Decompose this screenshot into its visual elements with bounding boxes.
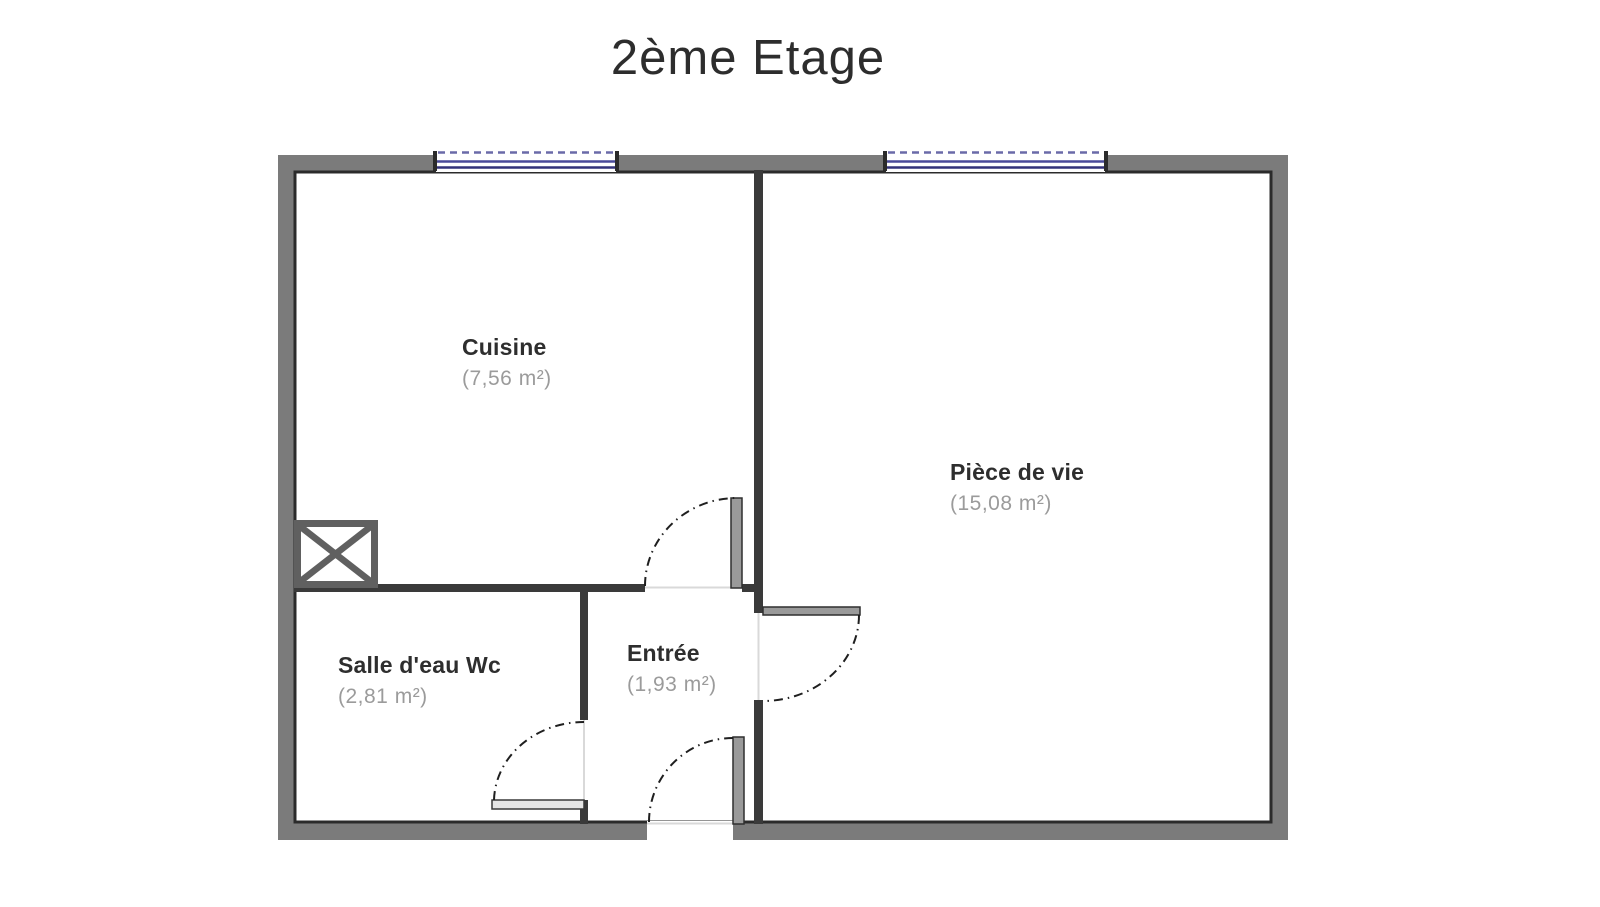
- entry-door-opening: [647, 821, 733, 841]
- door-leaf: [763, 607, 860, 615]
- room-name: Entrée: [627, 642, 717, 665]
- room-name: Pièce de vie: [950, 461, 1084, 484]
- room-area: (15,08 m²): [950, 493, 1084, 514]
- floor-plan-drawing: [0, 0, 1600, 907]
- door-swing-arc: [649, 738, 733, 822]
- door-leaf: [731, 498, 742, 588]
- room-name: Cuisine: [462, 336, 552, 359]
- door-leaf: [492, 800, 584, 809]
- shaft-symbol: [297, 524, 375, 585]
- floor-plan-page: 2ème Etage: [0, 0, 1600, 907]
- exterior-walls: [278, 155, 1288, 840]
- door-swing-arc: [645, 498, 737, 586]
- door-swing-arc: [494, 722, 584, 800]
- window-symbol: [883, 150, 1108, 172]
- room-area: (2,81 m²): [338, 686, 501, 707]
- room-name: Salle d'eau Wc: [338, 654, 501, 677]
- room-area: (1,93 m²): [627, 674, 717, 695]
- room-area: (7,56 m²): [462, 368, 552, 389]
- room-label-cuisine: Cuisine (7,56 m²): [462, 336, 552, 389]
- room-label-salle-deau: Salle d'eau Wc (2,81 m²): [338, 654, 501, 707]
- door-swing-arc: [763, 615, 859, 701]
- room-label-piece-de-vie: Pièce de vie (15,08 m²): [950, 461, 1084, 514]
- window-symbol: [433, 150, 619, 172]
- interior-walls: [294, 170, 763, 824]
- door-leaf: [733, 737, 744, 824]
- room-label-entree: Entrée (1,93 m²): [627, 642, 717, 695]
